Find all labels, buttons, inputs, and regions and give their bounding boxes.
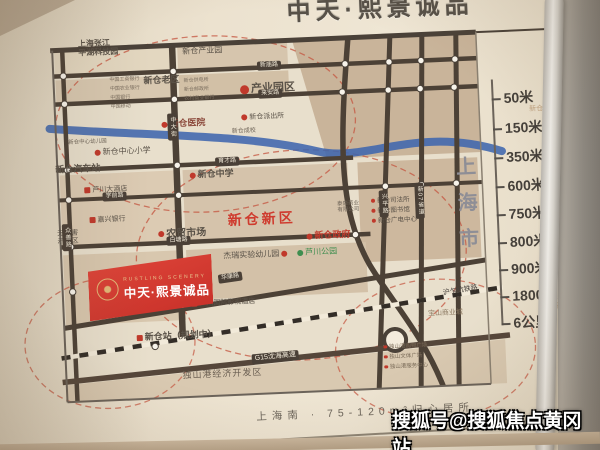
hotel-icon: [84, 187, 90, 193]
tick-icon: [499, 269, 508, 271]
poi-jiaxing-bank: 嘉兴银行: [89, 216, 125, 226]
government-icon: [306, 233, 312, 239]
region-industry-park: 新仓产业园: [182, 45, 222, 56]
school-icon: [95, 150, 101, 156]
poi-telecom-cmcc: 中国移动: [111, 104, 131, 111]
poi-icon: [383, 345, 387, 349]
scale-row: 600米: [495, 174, 545, 196]
tick-icon: [492, 98, 501, 100]
poi-adult-school: 新仓成校: [232, 128, 256, 136]
school-icon: [190, 172, 196, 178]
poi-bus-station: 新仓汽车站: [55, 163, 100, 175]
road-chip-baitang: 白塘路: [166, 236, 190, 246]
region-new-district: 新仓新区: [227, 209, 296, 228]
bank-icon: [89, 217, 95, 223]
map-signboard: 中天·熙景诚品 上海张江平湖科技园 新仓产业园 新仓老区 新仓新区 独山港经济开…: [0, 0, 600, 450]
watermark: 搜狐号@搜狐焦点黄冈站: [392, 406, 600, 450]
poi-icon: [372, 219, 376, 223]
tick-icon: [500, 296, 509, 298]
poi-icon: [240, 85, 249, 94]
market-icon: [158, 231, 164, 237]
poi-luchuan-park: 芦川公园: [297, 246, 337, 257]
police-icon: [241, 114, 247, 120]
poi-icon: [384, 365, 388, 369]
region-baoshan: 宝山商业城: [428, 309, 463, 319]
kindergarten-icon: [281, 250, 287, 256]
road-chip-xingping: 兴平路: [379, 190, 389, 217]
region-old-town: 新仓老区: [143, 74, 179, 86]
road-chip-zhongshan: 众善路: [62, 224, 72, 251]
wall-right: [558, 0, 600, 450]
poi-icon: [371, 209, 375, 213]
tick-icon: [493, 128, 502, 130]
poi-middle-school: 新仓中学: [189, 168, 233, 180]
poi-power-station: 新仓供电所: [184, 78, 209, 85]
region-science-park: 上海张江平湖科技园: [78, 38, 119, 58]
project-logo-icon: [96, 278, 119, 301]
tick-icon: [494, 157, 503, 159]
scale-row: 750米: [496, 202, 546, 224]
road-chip-xinmiao: 新庙路: [257, 61, 281, 71]
poi-post-office: 新仓邮政所: [184, 87, 209, 94]
scale-row: 150米: [493, 116, 543, 138]
park-icon: [297, 250, 303, 256]
poi-bank-boc: 中国银行: [110, 95, 130, 102]
tick-icon: [497, 214, 506, 216]
project-name-cn: 中天·熙景诚品: [123, 279, 210, 302]
tick-icon: [498, 242, 507, 244]
road-chip-laian: 来安路: [258, 89, 282, 99]
tick-icon: [496, 186, 505, 188]
poi-government: 新仓政府: [306, 229, 350, 241]
road-chip-yucai: 育才路: [215, 157, 239, 167]
road-chip-zhongdajie: 中大街: [167, 113, 177, 140]
train-station-icon: [137, 335, 143, 341]
road-chip-s07: 新07省道: [414, 183, 424, 219]
tick-icon: [501, 323, 510, 325]
scale-row: 50米: [491, 87, 533, 109]
poi-icon: [371, 199, 375, 203]
photo-of-map-sign: 中天·熙景诚品 上海张江平湖科技园 新仓产业园 新仓老区 新仓新区 独山港经济开…: [0, 0, 600, 450]
poi-icon: [384, 355, 388, 359]
scale-row: 350米: [494, 145, 544, 167]
poi-taikang: 泰康药业有限公司: [337, 200, 360, 214]
road-chip-xueqian: 学前路: [102, 192, 126, 202]
wall-corner: [0, 0, 75, 36]
city-label-shanghai: 上海市: [449, 155, 483, 264]
